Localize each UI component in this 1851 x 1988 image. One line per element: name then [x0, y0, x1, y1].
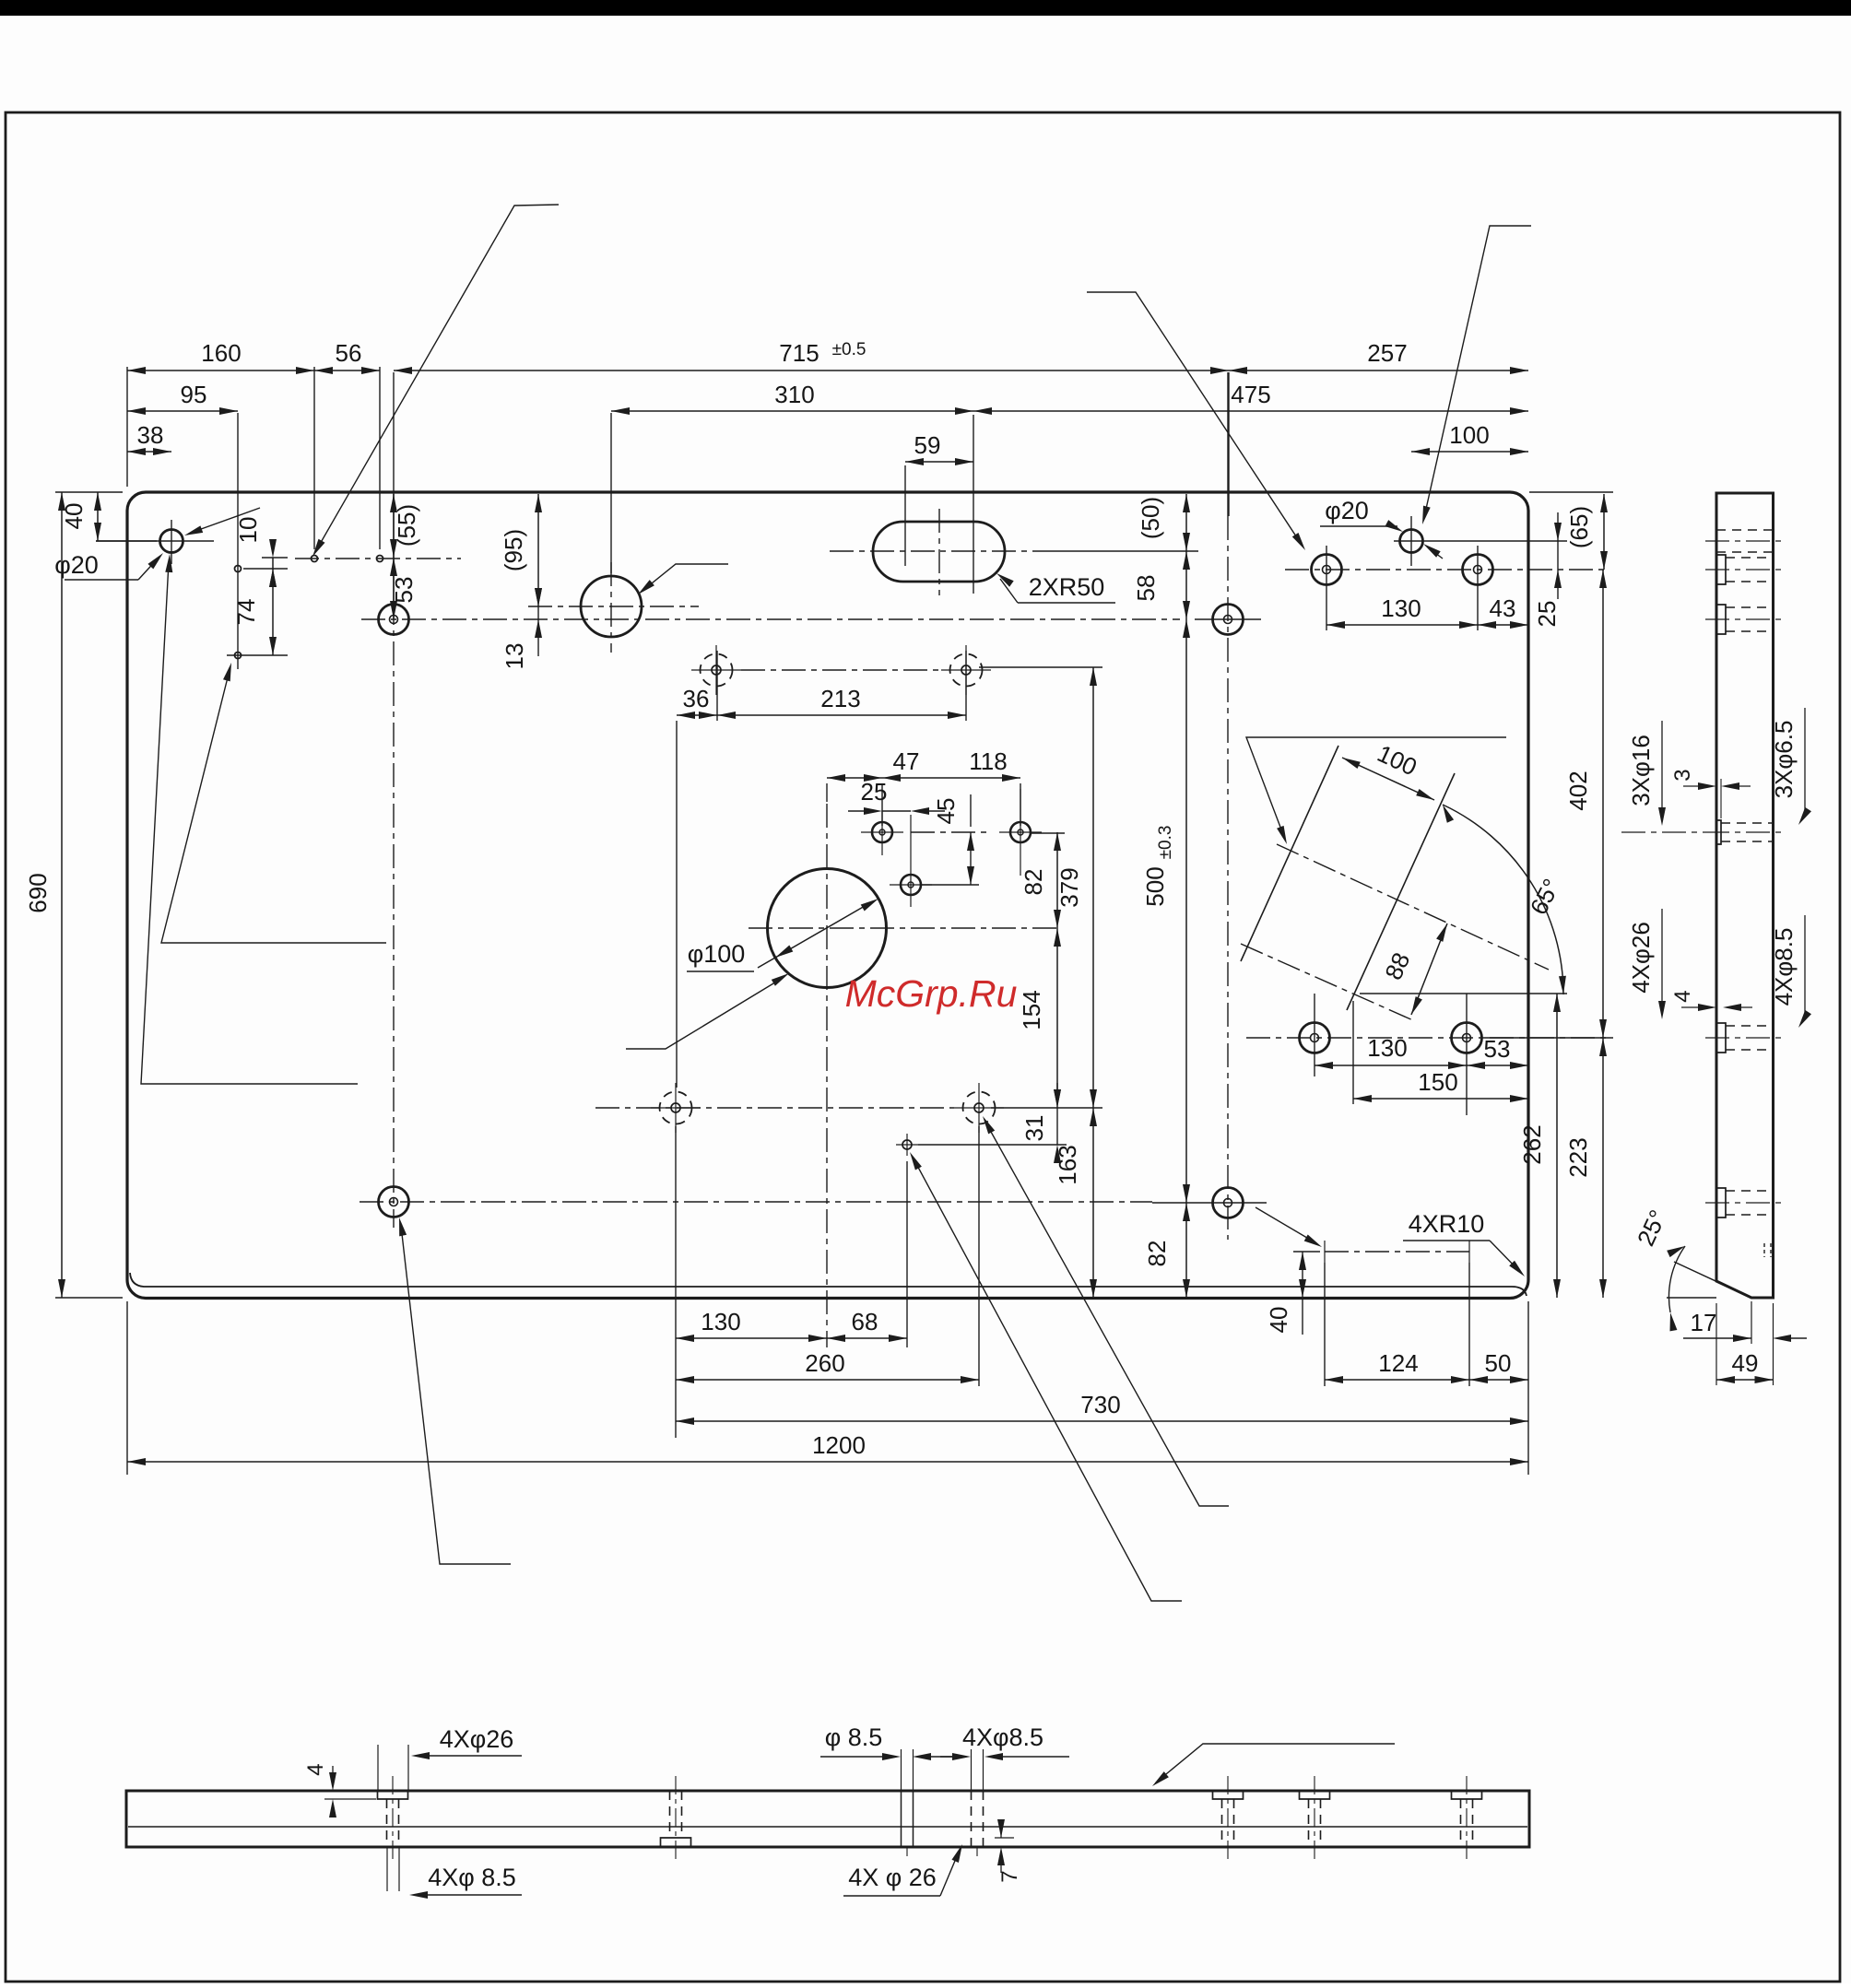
- svg-text:25: 25: [861, 778, 888, 806]
- svg-text:82: 82: [1143, 1241, 1171, 1267]
- svg-text:154: 154: [1018, 990, 1045, 1029]
- svg-text:402: 402: [1564, 770, 1592, 810]
- svg-text:68: 68: [852, 1308, 878, 1335]
- svg-text:17: 17: [1691, 1309, 1717, 1336]
- svg-text:38: 38: [137, 421, 164, 449]
- svg-text:82: 82: [1020, 869, 1047, 896]
- svg-text:53: 53: [1484, 1035, 1511, 1063]
- svg-text:McGrp.Ru: McGrp.Ru: [845, 972, 1018, 1015]
- svg-text:262: 262: [1518, 1124, 1546, 1164]
- svg-text:31: 31: [1020, 1115, 1048, 1142]
- svg-text:730: 730: [1080, 1391, 1120, 1418]
- svg-text:163: 163: [1054, 1145, 1081, 1184]
- svg-text:25: 25: [1533, 601, 1561, 628]
- svg-text:4Xφ 8.5: 4Xφ 8.5: [428, 1864, 516, 1891]
- svg-text:150: 150: [1418, 1068, 1457, 1096]
- svg-text:257: 257: [1367, 339, 1407, 367]
- svg-text:379: 379: [1055, 867, 1083, 907]
- svg-text:(55): (55): [393, 504, 420, 547]
- svg-text:(50): (50): [1137, 497, 1164, 539]
- svg-text:74: 74: [232, 599, 260, 626]
- svg-text:2XR50: 2XR50: [1029, 573, 1105, 601]
- svg-text:130: 130: [1367, 1034, 1407, 1062]
- svg-text:45: 45: [932, 798, 960, 825]
- svg-text:58: 58: [1132, 575, 1160, 602]
- svg-text:(95): (95): [500, 529, 527, 571]
- svg-text:223: 223: [1564, 1137, 1592, 1177]
- svg-text:4X φ 26: 4X φ 26: [848, 1864, 937, 1891]
- svg-text:(65): (65): [1565, 506, 1593, 548]
- svg-text:4Xφ8.5: 4Xφ8.5: [1770, 928, 1798, 1006]
- svg-text:124: 124: [1378, 1349, 1418, 1377]
- svg-text:φ100: φ100: [688, 940, 746, 968]
- svg-text:100: 100: [1449, 421, 1489, 449]
- svg-text:25°: 25°: [1632, 1206, 1672, 1250]
- svg-text:7: 7: [997, 1870, 1022, 1882]
- svg-text:310: 310: [774, 381, 814, 408]
- svg-text:59: 59: [914, 431, 941, 459]
- svg-text:±0.5: ±0.5: [832, 340, 867, 359]
- svg-text:475: 475: [1231, 381, 1270, 408]
- svg-text:4XR10: 4XR10: [1409, 1210, 1485, 1238]
- svg-text:213: 213: [820, 685, 860, 712]
- svg-text:47: 47: [893, 747, 920, 775]
- svg-text:13: 13: [501, 643, 528, 670]
- svg-text:50: 50: [1485, 1349, 1512, 1377]
- svg-text:3: 3: [1670, 769, 1695, 781]
- svg-text:690: 690: [24, 873, 52, 912]
- svg-text:1200: 1200: [812, 1431, 866, 1459]
- svg-text:130: 130: [1381, 594, 1421, 622]
- svg-text:49: 49: [1732, 1349, 1759, 1377]
- svg-text:53: 53: [390, 577, 418, 604]
- svg-text:43: 43: [1490, 594, 1516, 622]
- svg-text:3Xφ16: 3Xφ16: [1627, 735, 1655, 806]
- svg-text:40: 40: [60, 503, 88, 530]
- svg-text:φ 8.5: φ 8.5: [825, 1723, 883, 1751]
- svg-text:4: 4: [303, 1763, 328, 1775]
- svg-text:10: 10: [234, 517, 262, 544]
- svg-text:130: 130: [701, 1308, 740, 1335]
- svg-text:715: 715: [779, 339, 819, 367]
- svg-text:260: 260: [805, 1349, 844, 1377]
- svg-text:4: 4: [1670, 990, 1695, 1002]
- svg-text:95: 95: [181, 381, 207, 408]
- svg-text:118: 118: [969, 747, 1007, 775]
- svg-text:160: 160: [201, 339, 241, 367]
- svg-text:4Xφ26: 4Xφ26: [440, 1725, 514, 1753]
- svg-text:56: 56: [336, 339, 362, 367]
- svg-text:4Xφ8.5: 4Xφ8.5: [962, 1723, 1043, 1751]
- svg-text:40: 40: [1265, 1307, 1292, 1334]
- svg-text:3Xφ6.5: 3Xφ6.5: [1770, 721, 1798, 799]
- svg-text:500: 500: [1141, 866, 1169, 906]
- svg-text:88: 88: [1379, 948, 1415, 984]
- svg-text:±0.3: ±0.3: [1156, 826, 1175, 860]
- svg-text:4Xφ26: 4Xφ26: [1627, 922, 1655, 994]
- svg-text:36: 36: [683, 685, 710, 712]
- svg-text:φ20: φ20: [1325, 497, 1369, 524]
